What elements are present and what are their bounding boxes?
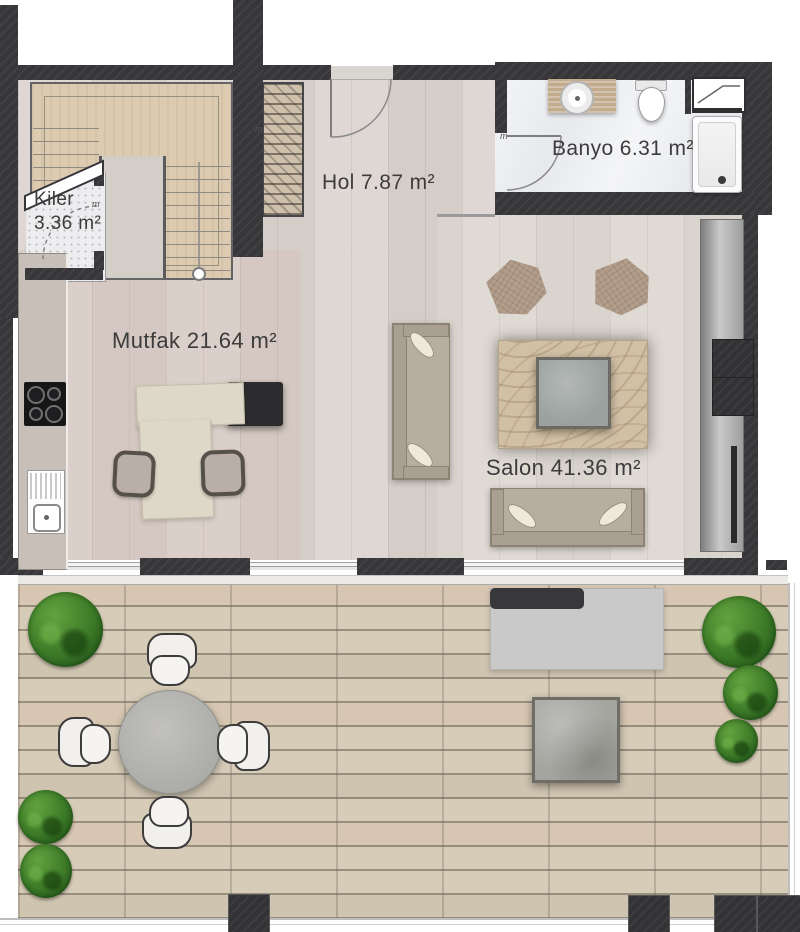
wall-bottom-b xyxy=(140,558,250,575)
dining-chair xyxy=(200,449,246,497)
exterior-wall-left xyxy=(0,5,18,318)
bathroom-partition xyxy=(685,76,691,114)
plant-bush xyxy=(702,596,776,668)
pillow xyxy=(504,500,539,532)
floor-plan: Kiler 3.36 m² Hol 7.87 m² Banyo 6.31 m² … xyxy=(0,0,800,932)
bathroom-sink xyxy=(560,81,594,115)
chair-seat xyxy=(80,724,111,764)
entrance-threshold xyxy=(331,66,393,80)
outdoor-chair xyxy=(147,633,193,687)
television xyxy=(731,446,737,543)
outdoor-chair xyxy=(216,721,270,767)
burner xyxy=(47,387,61,401)
dining-chair xyxy=(112,450,156,498)
bathroom-wall-left xyxy=(495,80,507,133)
tv-wall-cabinet xyxy=(712,339,754,379)
chair-seat xyxy=(149,796,189,827)
wall-bottom-c xyxy=(357,558,464,575)
cooktop xyxy=(24,382,66,426)
terrace-post xyxy=(628,895,670,932)
room-label-salon: Salon 41.36 m² xyxy=(486,455,641,481)
sofa-vertical xyxy=(392,323,450,480)
stone-side-table xyxy=(532,697,620,783)
terrace-railing-bottom xyxy=(0,918,800,932)
chair-seat xyxy=(217,724,248,764)
burner xyxy=(29,407,43,421)
room-label-mutfak: Mutfak 21.64 m² xyxy=(112,328,277,354)
glass-door-c xyxy=(464,562,684,570)
chair-seat xyxy=(150,655,190,686)
stair-treads-right xyxy=(166,154,230,278)
wall-top-c xyxy=(393,65,495,80)
kiler-wall-bottom xyxy=(25,268,103,280)
coffee-table xyxy=(536,357,611,429)
outdoor-chair xyxy=(58,721,112,767)
bathtub-basin xyxy=(698,122,736,187)
outdoor-lounge-backrest xyxy=(490,588,584,609)
exterior-wall-left-lower xyxy=(0,318,13,560)
hall-step-line xyxy=(437,214,495,217)
bathtub-drain xyxy=(718,176,726,184)
sofa-armrest xyxy=(491,489,504,535)
sink-drain-dot xyxy=(44,515,49,520)
sink-drainboard xyxy=(30,473,61,499)
kitchen-sink-unit xyxy=(27,470,65,534)
terrace-post xyxy=(757,895,800,932)
terrace-wall-stub-a xyxy=(740,560,758,573)
terrace-post xyxy=(228,894,270,932)
stair-void xyxy=(99,156,166,278)
kiler-area: 3.36 m² xyxy=(34,212,101,236)
wall-below-bathroom xyxy=(495,192,755,215)
wall-top-b xyxy=(263,65,331,80)
terrace-post xyxy=(714,895,757,932)
plant-bush xyxy=(723,665,778,720)
plant-bush xyxy=(715,719,758,763)
terrace-wall-stub-b xyxy=(766,560,787,570)
sofa-backrest xyxy=(491,531,644,546)
sofa-horizontal xyxy=(490,488,645,547)
plant-bush xyxy=(20,844,72,898)
sofa-armrest xyxy=(631,489,644,535)
room-label-banyo: Banyo 6.31 m² xyxy=(552,137,694,161)
burner xyxy=(27,386,45,404)
terrace-railing-right xyxy=(788,583,800,918)
outdoor-round-table xyxy=(118,690,222,794)
terrace-threshold xyxy=(18,575,788,585)
bathtub xyxy=(692,116,742,193)
burner xyxy=(45,405,63,423)
plant-bush xyxy=(18,790,73,844)
pillow xyxy=(595,498,630,530)
sofa-backrest xyxy=(393,324,407,479)
wall-top-a xyxy=(18,65,233,80)
shower-sill xyxy=(692,108,742,113)
glass-door-b xyxy=(250,562,357,570)
tv-wall-cabinet xyxy=(712,377,754,416)
sink-drain-dot xyxy=(575,96,580,101)
sofa-armrest xyxy=(403,466,449,479)
plant-bush xyxy=(28,592,103,667)
door-marker: m xyxy=(255,124,263,134)
kitchen-sink-basin xyxy=(33,504,61,532)
room-label-kiler: Kiler 3.36 m² xyxy=(34,188,101,236)
room-label-hol: Hol 7.87 m² xyxy=(322,171,435,195)
door-marker: m xyxy=(500,131,508,141)
outdoor-chair xyxy=(146,795,192,849)
kiler-door-jamb-bottom xyxy=(94,251,104,270)
hall-closet xyxy=(262,82,304,217)
door-marker: m xyxy=(92,199,100,209)
kiler-door-jamb-top xyxy=(94,166,104,186)
